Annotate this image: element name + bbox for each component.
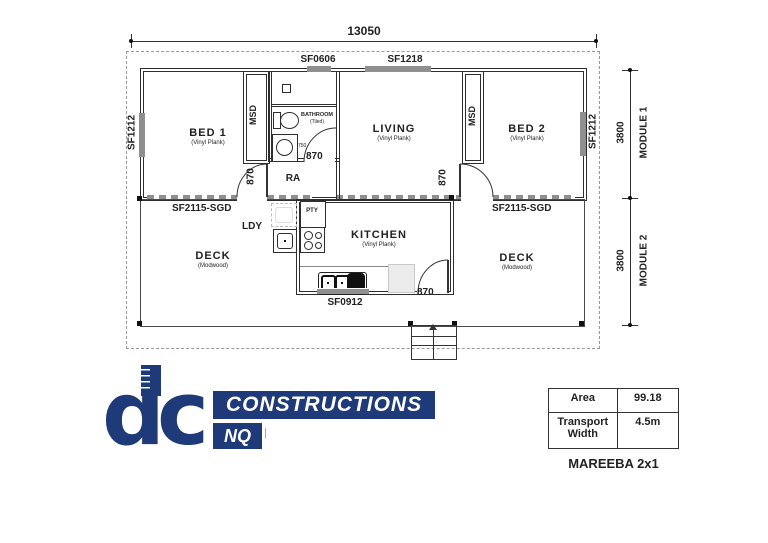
logo-constructions-text: CONSTRUCTIONS	[226, 393, 422, 417]
module1-name-label: MODULE 1	[639, 103, 650, 163]
deck-post	[449, 195, 454, 200]
laundry-label: LDY	[235, 221, 269, 232]
window-bar-sf0606	[307, 66, 331, 72]
window-label-sf0606: SF0606	[290, 54, 346, 65]
deck-left-finish: (Modwood)	[163, 263, 263, 271]
floor-plan-sheet: 13050 MSD MSD 750 BED 1 (Vinyl Plank) BA…	[0, 0, 768, 543]
cooktop-burner	[304, 231, 313, 240]
deck-post	[137, 321, 142, 326]
shower-divider-wall	[272, 104, 336, 107]
wardrobe-bed2-label: MSD	[467, 96, 477, 136]
deck-right-finish: (Modwood)	[467, 265, 567, 273]
cooktop-burner	[315, 242, 322, 249]
module1-dim-label: 3800	[616, 103, 627, 163]
room-label-bathroom: BATHROOM (Tiled)	[296, 112, 338, 126]
cooktop-burner	[304, 241, 313, 250]
deck-left-name: DECK	[163, 249, 263, 263]
sink-bowl-drain	[327, 282, 329, 284]
module2-dim-label: 3800	[616, 231, 627, 291]
bathroom-right-wall	[336, 71, 340, 199]
logo-fine-print-mark	[265, 428, 266, 438]
window-label-left-sf1212: SF1212	[127, 103, 138, 163]
living-name: LIVING	[344, 122, 444, 136]
bed2-name: BED 2	[482, 122, 572, 136]
window-bar-sf0912	[317, 289, 369, 294]
stair-tread	[412, 336, 456, 337]
window-bar-sf1218	[365, 66, 431, 72]
dimension-dot	[129, 39, 133, 43]
window-label-right-sf1212: SF1212	[588, 102, 599, 162]
bathroom-finish: (Tiled)	[296, 119, 338, 126]
stairs	[411, 325, 457, 360]
door-width-label: 870	[417, 287, 434, 298]
plan-title: MAREEBA 2x1	[548, 456, 679, 471]
dimension-dot	[628, 323, 632, 327]
sliding-door-left-label: SF2115-SGD	[172, 203, 231, 214]
spec-area-value: 99.18	[617, 389, 678, 413]
deck-post	[579, 321, 584, 326]
pantry-label: PTY	[300, 208, 324, 214]
room-label-deck-left: DECK (Modwood)	[163, 249, 263, 271]
laundry-tub-drain	[284, 240, 286, 242]
spec-transport-label: Transport Width	[549, 413, 618, 449]
dimension-dot	[628, 196, 632, 200]
stair-tread	[412, 345, 456, 346]
washing-machine-inner	[275, 207, 293, 223]
logo-nq-box: NQ	[213, 423, 262, 449]
stair-direction-line	[433, 330, 434, 359]
cooktop	[300, 227, 325, 253]
logo-ruler-ticks	[141, 369, 150, 393]
pantry	[300, 201, 326, 228]
dimension-dot	[628, 68, 632, 72]
washing-machine	[271, 203, 297, 227]
bathroom-name: BATHROOM	[296, 112, 338, 119]
fridge-space	[388, 264, 415, 293]
bed2-finish: (Vinyl Plank)	[482, 136, 572, 144]
sliding-door-right-label: SF2115-SGD	[492, 203, 551, 214]
overall-width-dimension: 13050	[328, 24, 400, 38]
kitchen-name: KITCHEN	[329, 228, 429, 242]
logo-nq-text: NQ	[224, 426, 251, 447]
room-label-deck-right: DECK (Modwood)	[467, 251, 567, 273]
dimension-dot	[594, 39, 598, 43]
kitchen-finish: (Vinyl Plank)	[329, 242, 429, 250]
door-width-label: 870	[246, 157, 257, 197]
deck-right-name: DECK	[467, 251, 567, 265]
room-label-kitchen: KITCHEN (Vinyl Plank)	[329, 228, 429, 250]
window-bar-right-sf1212	[580, 112, 586, 156]
module2-name-label: MODULE 2	[639, 231, 650, 291]
shower-rose-icon	[282, 84, 291, 93]
logo-ruler-icon	[141, 365, 161, 396]
spec-transport-value: 4.5m	[617, 413, 678, 449]
vanity-basin	[276, 139, 293, 156]
window-bar-left-sf1212	[139, 113, 145, 157]
window-label-sf1218: SF1218	[377, 54, 433, 65]
kitchen-bench-edge	[300, 266, 388, 267]
door-width-label: 870	[306, 151, 323, 162]
sink-bowl-drain	[341, 282, 343, 284]
spec-area-label: Area	[549, 389, 618, 413]
deck-post	[137, 196, 142, 201]
spec-table: Area 99.18 Transport Width 4.5m	[548, 388, 679, 449]
spec-row-transport: Transport Width 4.5m	[549, 413, 679, 449]
stair-up-arrow-icon	[429, 324, 437, 330]
bed1-name: BED 1	[158, 126, 258, 140]
room-label-bed1: BED 1 (Vinyl Plank)	[158, 126, 258, 148]
door-arc	[460, 164, 493, 197]
logo-constructions-box: CONSTRUCTIONS	[213, 391, 435, 419]
room-label-living: LIVING (Vinyl Plank)	[344, 122, 444, 144]
return-air-label: RA	[281, 173, 305, 184]
top-dimension-line	[131, 41, 597, 42]
laundry-tub	[273, 229, 297, 253]
living-finish: (Vinyl Plank)	[344, 136, 444, 144]
cooktop-burner	[315, 232, 322, 239]
bed1-finish: (Vinyl Plank)	[158, 140, 258, 148]
spec-row-area: Area 99.18	[549, 389, 679, 413]
door-width-label: 870	[438, 158, 449, 198]
room-label-bed2: BED 2 (Vinyl Plank)	[482, 122, 572, 144]
window-label-sf0912: SF0912	[315, 297, 375, 308]
